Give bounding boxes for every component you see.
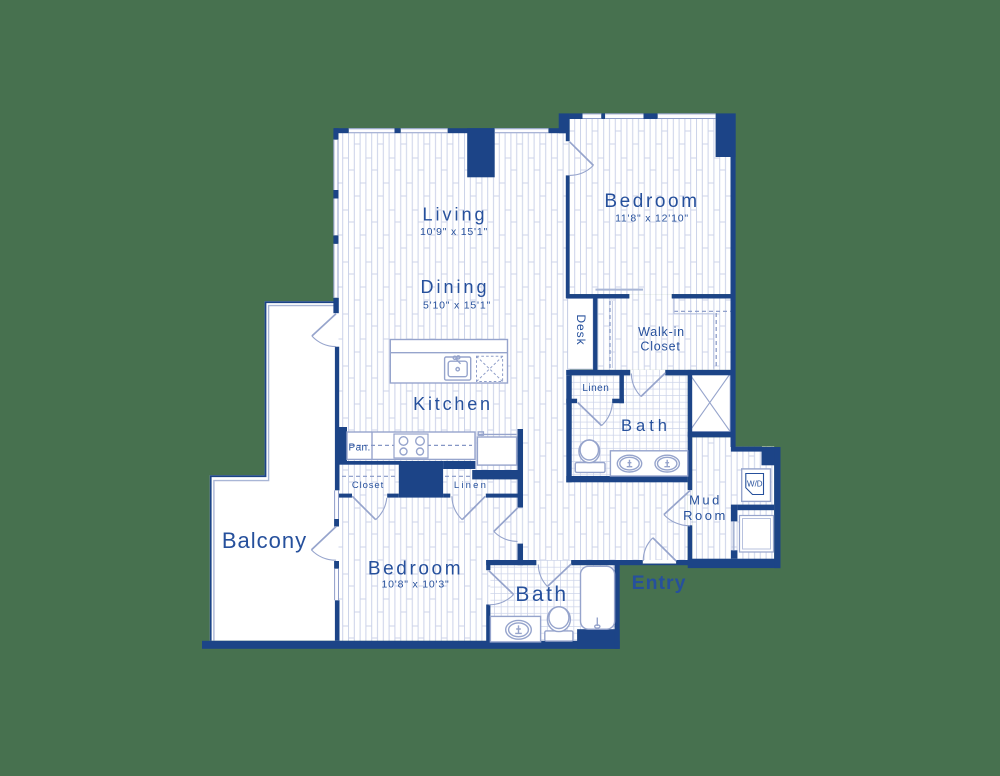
svg-text:Bedroom: Bedroom [368, 559, 463, 580]
svg-text:Closet: Closet [352, 480, 384, 491]
svg-text:Kitchen: Kitchen [413, 394, 493, 414]
svg-text:5'10" x 15'1": 5'10" x 15'1" [423, 300, 491, 312]
svg-text:W/D: W/D [747, 480, 763, 489]
svg-text:Walk-in: Walk-in [638, 325, 685, 339]
svg-text:Balcony: Balcony [222, 528, 307, 553]
svg-text:Dining: Dining [420, 277, 489, 297]
svg-text:Bath: Bath [515, 583, 568, 606]
svg-text:10'8" x 10'3": 10'8" x 10'3" [382, 579, 450, 591]
svg-text:10'9" x 15'1": 10'9" x 15'1" [420, 226, 488, 238]
svg-text:Linen: Linen [454, 480, 488, 491]
svg-text:Mud: Mud [689, 493, 722, 508]
svg-text:Linen: Linen [582, 383, 609, 394]
svg-text:Entry: Entry [632, 572, 687, 594]
svg-text:Desk: Desk [574, 314, 588, 345]
svg-text:Bedroom: Bedroom [604, 191, 699, 212]
svg-text:11'8" x 12'10": 11'8" x 12'10" [615, 213, 689, 225]
svg-text:Pan.: Pan. [349, 443, 371, 454]
svg-text:Closet: Closet [640, 340, 680, 354]
svg-text:Room: Room [683, 508, 728, 523]
svg-text:Living: Living [422, 205, 487, 225]
svg-text:Bath: Bath [621, 417, 671, 435]
